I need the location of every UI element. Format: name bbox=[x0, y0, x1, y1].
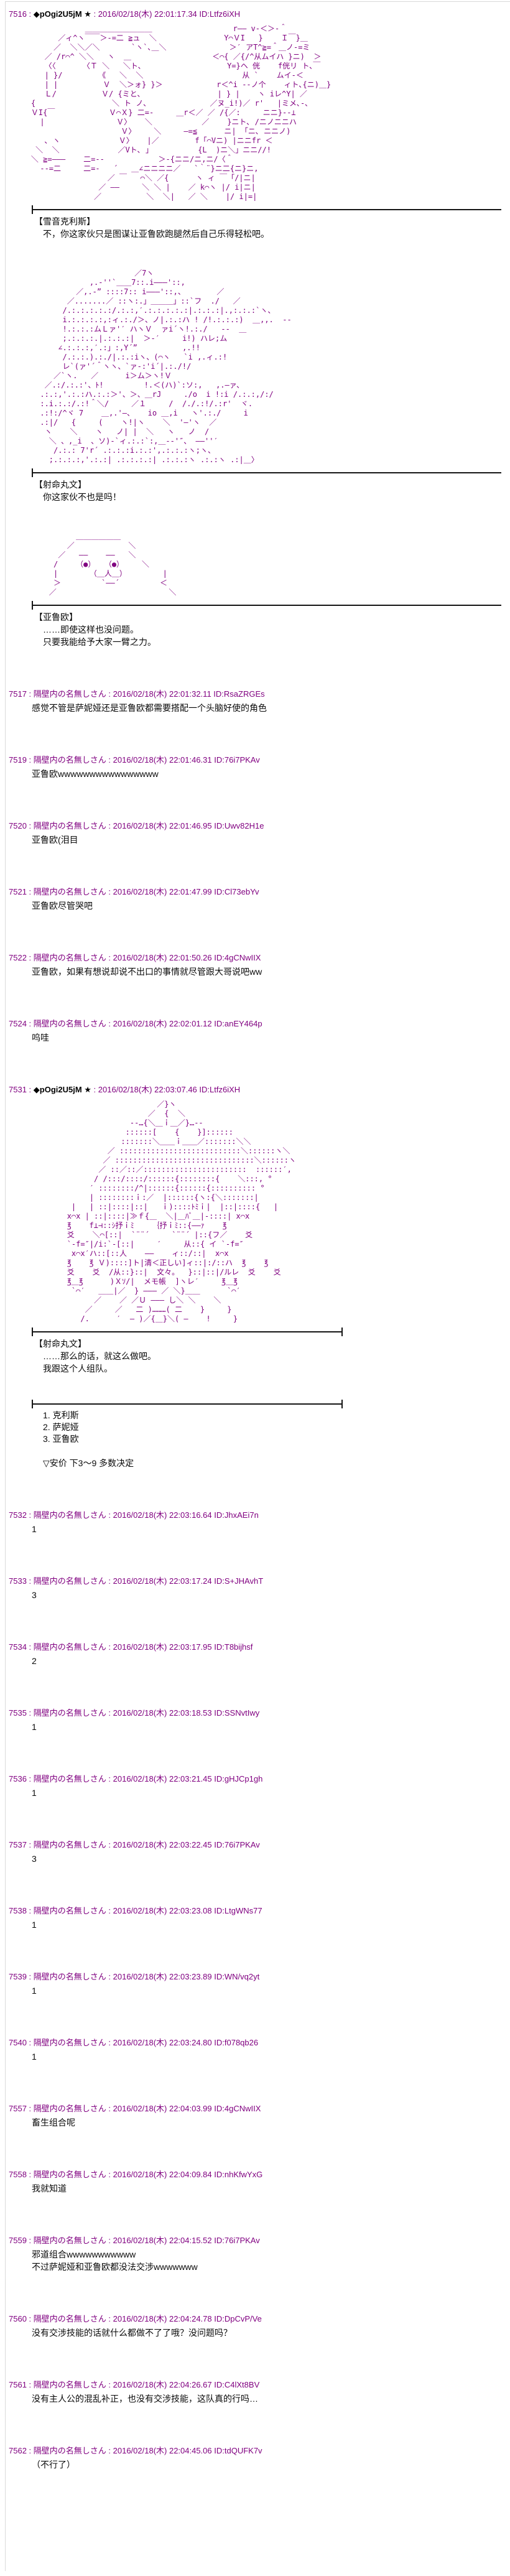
post-date: 2016/02/18(木) 22:03:24.80 bbox=[113, 2038, 212, 2047]
header-separator: : bbox=[27, 953, 34, 962]
post-body-line: 没有交涉技能的话就什么都做不了了哦？没问题吗？ bbox=[6, 2327, 510, 2339]
post: 7536 : 隔壁内の名無しさん : 2016/02/18(木) 22:03:2… bbox=[6, 1773, 510, 1799]
post-id: ID:76i7PKAv bbox=[214, 2236, 259, 2245]
post: 7539 : 隔壁内の名無しさん : 2016/02/18(木) 22:03:2… bbox=[6, 1971, 510, 1997]
header-separator: : bbox=[27, 1019, 34, 1028]
header-separator: : bbox=[27, 1906, 34, 1915]
header-separator: : bbox=[27, 2380, 34, 2389]
post: 7516 : ◆pOgi2U5jM ★ : 2016/02/18(木) 22:0… bbox=[6, 8, 510, 648]
post-number: 7557 bbox=[9, 2104, 27, 2113]
dialog: 【雪音克利斯】不，你这家伙只是图谋让亚鲁欧跑腿然后自己乐得轻松吧。 bbox=[6, 215, 510, 240]
post-body-line: 亚鲁欧wwwwwwwwwwwwwwww bbox=[6, 768, 510, 780]
divider-end-tick bbox=[32, 1400, 33, 1408]
post-body-line: 1 bbox=[6, 1984, 510, 1997]
ascii-art: ＿＿＿＿＿＿ ／ ＼ ／ —— —— ＼ / （●） （●） ＼ | （＿人＿）… bbox=[13, 532, 510, 597]
post-date: 2016/02/18(木) 22:01:50.26 bbox=[113, 953, 212, 962]
speaker-name: 【亚鲁欧】 bbox=[6, 611, 510, 623]
post-header: 7522 : 隔壁内の名無しさん : 2016/02/18(木) 22:01:5… bbox=[6, 952, 510, 964]
post-header: 7559 : 隔壁内の名無しさん : 2016/02/18(木) 22:04:1… bbox=[6, 2234, 510, 2247]
post-header: 7540 : 隔壁内の名無しさん : 2016/02/18(木) 22:03:2… bbox=[6, 2037, 510, 2049]
post-date: 2016/02/18(木) 22:02:01.12 bbox=[113, 1019, 212, 1028]
post-header: 7517 : 隔壁内の名無しさん : 2016/02/18(木) 22:01:3… bbox=[6, 688, 510, 700]
post-id: ID:Uwv82H1e bbox=[214, 821, 264, 830]
post: 7519 : 隔壁内の名無しさん : 2016/02/18(木) 22:01:4… bbox=[6, 754, 510, 780]
post-id: ID:DpCvP/Ve bbox=[214, 2314, 262, 2323]
post: 7561 : 隔壁内の名無しさん : 2016/02/18(木) 22:04:2… bbox=[6, 2379, 510, 2405]
header-separator: : bbox=[106, 1906, 113, 1915]
dialog-divider bbox=[32, 1331, 343, 1332]
post: 7538 : 隔壁内の名無しさん : 2016/02/18(木) 22:03:2… bbox=[6, 1905, 510, 1931]
post-name: 隔壁内の名無しさん bbox=[34, 1019, 106, 1028]
header-separator: : bbox=[27, 1642, 34, 1652]
post-body-line: 1 bbox=[6, 2050, 510, 2063]
post-body: （不行了） bbox=[6, 2458, 510, 2471]
header-separator: : bbox=[106, 821, 113, 830]
dialog: 【射命丸文】……那么的话，就这么做吧。我跟这个人组队。 bbox=[6, 1337, 510, 1375]
post-id: ID:4gCNwIIX bbox=[214, 953, 261, 962]
header-separator: : bbox=[27, 2104, 34, 2113]
header-separator: : bbox=[106, 2446, 113, 2455]
post-body: 感觉不管是萨妮娅还是亚鲁欧都需要搭配一个头脑好使的角色 bbox=[6, 702, 510, 714]
post-date: 2016/02/18(木) 22:04:09.84 bbox=[113, 2170, 212, 2179]
post-id: ID:LtgWNs77 bbox=[214, 1906, 262, 1915]
post-body-line: 没有主人公的混乱补正，也没有交涉技能，这队真的行吗… bbox=[6, 2392, 510, 2405]
post-number: 7533 bbox=[9, 1576, 27, 1586]
header-separator: : bbox=[106, 1642, 113, 1652]
post-number: 7536 bbox=[9, 1774, 27, 1783]
post-header: 7538 : 隔壁内の名無しさん : 2016/02/18(木) 22:03:2… bbox=[6, 1905, 510, 1917]
header-separator: : bbox=[106, 1708, 113, 1718]
header-separator: : bbox=[106, 689, 113, 699]
post-name: ◆pOgi2U5jM ★ bbox=[34, 9, 91, 19]
post-number: 7558 bbox=[9, 2170, 27, 2179]
post-date: 2016/02/18(木) 22:03:22.45 bbox=[113, 1840, 212, 1849]
header-separator: : bbox=[106, 2236, 113, 2245]
post-header: 7539 : 隔壁内の名無しさん : 2016/02/18(木) 22:03:2… bbox=[6, 1971, 510, 1983]
post-id: ID:S+JHAvhT bbox=[214, 1576, 263, 1586]
post-header: 7562 : 隔壁内の名無しさん : 2016/02/18(木) 22:04:4… bbox=[6, 2445, 510, 2457]
post-body-line: 1 bbox=[6, 1787, 510, 1799]
post-header: 7561 : 隔壁内の名無しさん : 2016/02/18(木) 22:04:2… bbox=[6, 2379, 510, 2391]
post-name: 隔壁内の名無しさん bbox=[34, 2104, 106, 2113]
post-date: 2016/02/18(木) 22:04:03.99 bbox=[113, 2104, 212, 2113]
post-name: 隔壁内の名無しさん bbox=[34, 755, 106, 765]
post-date: 2016/02/18(木) 22:03:16.64 bbox=[113, 1510, 212, 1520]
post-body: 2 bbox=[6, 1655, 510, 1667]
post: 7531 : ◆pOgi2U5jM ★ : 2016/02/18(木) 22:0… bbox=[6, 1084, 510, 1469]
post-name: 隔壁内の名無しさん bbox=[34, 953, 106, 962]
divider-end-tick bbox=[32, 468, 33, 477]
post: 7532 : 隔壁内の名無しさん : 2016/02/18(木) 22:03:1… bbox=[6, 1509, 510, 1535]
header-separator: : bbox=[27, 689, 34, 699]
post-body-line: 1 bbox=[6, 1721, 510, 1733]
post: 7522 : 隔壁内の名無しさん : 2016/02/18(木) 22:01:5… bbox=[6, 952, 510, 978]
post-body-line: 邪道组合wwwwwwwwwww bbox=[6, 2248, 510, 2261]
post-id: ID:anEY464p bbox=[214, 1019, 262, 1028]
post-name: 隔壁内の名無しさん bbox=[34, 2038, 106, 2047]
header-separator: : bbox=[106, 2170, 113, 2179]
header-separator: : bbox=[27, 1972, 34, 1981]
header-separator: : bbox=[106, 1972, 113, 1981]
post-body: 1 bbox=[6, 1787, 510, 1799]
header-separator: : bbox=[27, 1774, 34, 1783]
post-name: 隔壁内の名無しさん bbox=[34, 1972, 106, 1981]
post-header: 7560 : 隔壁内の名無しさん : 2016/02/18(木) 22:04:2… bbox=[6, 2313, 510, 2325]
post-number: 7532 bbox=[9, 1510, 27, 1520]
post-body-line: 亚鲁欧，如果有想说却说不出口的事情就尽管跟大哥说吧ww bbox=[6, 965, 510, 978]
header-separator: : bbox=[106, 1774, 113, 1783]
post-body-line: 亚鲁欧(泪目 bbox=[6, 834, 510, 846]
divider-end-tick bbox=[341, 1328, 343, 1336]
post-date: 2016/02/18(木) 22:01:32.11 bbox=[113, 689, 211, 699]
speaker-name: 【射命丸文】 bbox=[6, 1337, 510, 1350]
header-separator: : bbox=[27, 1085, 34, 1094]
vote-option: 2. 萨妮娅 bbox=[6, 1421, 510, 1433]
post-name: 隔壁内の名無しさん bbox=[34, 689, 106, 699]
post-name: 隔壁内の名無しさん bbox=[34, 1774, 106, 1783]
post-header: 7532 : 隔壁内の名無しさん : 2016/02/18(木) 22:03:1… bbox=[6, 1509, 510, 1522]
post-body: 3 bbox=[6, 1589, 510, 1601]
header-separator: : bbox=[27, 1576, 34, 1586]
post-date: 2016/02/18(木) 22:04:24.78 bbox=[113, 2314, 212, 2323]
post-header: 7521 : 隔壁内の名無しさん : 2016/02/18(木) 22:01:4… bbox=[6, 886, 510, 898]
header-separator: : bbox=[106, 1840, 113, 1849]
post-body-line: （不行了） bbox=[6, 2458, 510, 2471]
post-date: 2016/02/18(木) 22:01:46.31 bbox=[113, 755, 212, 765]
post-id: ID:tdQUFK7v bbox=[214, 2446, 262, 2455]
post-body-line: 亚鲁欧尽管哭吧 bbox=[6, 900, 510, 912]
post-number: 7531 bbox=[9, 1085, 27, 1094]
post-body: 呜哇 bbox=[6, 1031, 510, 1044]
post-name: 隔壁内の名無しさん bbox=[34, 1510, 106, 1520]
post-name: 隔壁内の名無しさん bbox=[34, 2236, 106, 2245]
dialog: 【射命丸文】你这家伙不也是吗！ bbox=[6, 478, 510, 503]
post-date: 2016/02/18(木) 22:01:17.34 bbox=[98, 9, 197, 19]
post-header: 7537 : 隔壁内の名無しさん : 2016/02/18(木) 22:03:2… bbox=[6, 1839, 510, 1851]
header-separator: : bbox=[27, 2446, 34, 2455]
header-separator: : bbox=[27, 2170, 34, 2179]
post-date: 2016/02/18(木) 22:04:15.52 bbox=[113, 2236, 212, 2245]
post-name: 隔壁内の名無しさん bbox=[34, 887, 106, 896]
post-header: 7535 : 隔壁内の名無しさん : 2016/02/18(木) 22:03:1… bbox=[6, 1707, 510, 1719]
dialog-line: 你这家伙不也是吗！ bbox=[6, 491, 510, 503]
post-name: 隔壁内の名無しさん bbox=[34, 821, 106, 830]
post-body-line: 不过萨妮娅和亚鲁欧都没法交涉wwwwwww bbox=[6, 2261, 510, 2273]
header-separator: : bbox=[91, 9, 98, 19]
thread: 7516 : ◆pOgi2U5jM ★ : 2016/02/18(木) 22:0… bbox=[6, 8, 510, 2471]
post: 7537 : 隔壁内の名無しさん : 2016/02/18(木) 22:03:2… bbox=[6, 1839, 510, 1865]
post-name: 隔壁内の名無しさん bbox=[34, 2170, 106, 2179]
header-separator: : bbox=[27, 821, 34, 830]
post-id: ID:SSNvtIwy bbox=[214, 1708, 259, 1718]
dialog-line: ……那么的话，就这么做吧。 bbox=[6, 1350, 510, 1362]
post-id: ID:Ltfz6iXH bbox=[199, 9, 240, 19]
post-name: ◆pOgi2U5jM ★ bbox=[34, 1085, 91, 1094]
post-number: 7559 bbox=[9, 2236, 27, 2245]
post-number: 7521 bbox=[9, 887, 27, 896]
post-id: ID:gHJCp1gh bbox=[214, 1774, 262, 1783]
post-id: ID:WN/vq2yt bbox=[214, 1972, 259, 1981]
post-date: 2016/02/18(木) 22:03:18.53 bbox=[113, 1708, 212, 1718]
divider-end-tick bbox=[32, 601, 33, 610]
post-body-line: 1 bbox=[6, 1918, 510, 1931]
post-date: 2016/02/18(木) 22:03:23.89 bbox=[113, 1972, 212, 1981]
post-date: 2016/02/18(木) 22:03:21.45 bbox=[113, 1774, 212, 1783]
post: 7562 : 隔壁内の名無しさん : 2016/02/18(木) 22:04:4… bbox=[6, 2445, 510, 2471]
dialog-line: 只要我能给予大家一臂之力。 bbox=[6, 636, 510, 648]
post-id: ID:Ltfz6iXH bbox=[199, 1085, 240, 1094]
post-header: 7516 : ◆pOgi2U5jM ★ : 2016/02/18(木) 22:0… bbox=[6, 8, 510, 21]
ascii-art: ＿＿＿＿＿＿＿＿＿ r―― v-＜＞-＾ ／ィ^ヽ￣￣＞-=二 ≧ュ ＼ Y⌒Ｖ… bbox=[13, 24, 510, 202]
header-separator: : bbox=[106, 1576, 113, 1586]
post-number: 7560 bbox=[9, 2314, 27, 2323]
post-header: 7557 : 隔壁内の名無しさん : 2016/02/18(木) 22:04:0… bbox=[6, 2103, 510, 2115]
dialog-divider bbox=[32, 1403, 343, 1405]
post-name: 隔壁内の名無しさん bbox=[34, 1642, 106, 1652]
post-name: 隔壁内の名無しさん bbox=[34, 1840, 106, 1849]
post-number: 7538 bbox=[9, 1906, 27, 1915]
post-id: ID:4gCNwIIX bbox=[214, 2104, 261, 2113]
post-number: 7534 bbox=[9, 1642, 27, 1652]
post-id: ID:76i7PKAv bbox=[214, 755, 259, 765]
post-number: 7517 bbox=[9, 689, 27, 699]
post-body-line: 3 bbox=[6, 1589, 510, 1601]
post-body: 亚鲁欧(泪目 bbox=[6, 834, 510, 846]
vote-option: 1. 克利斯 bbox=[6, 1410, 510, 1421]
post-id: ID:RsaZRGEs bbox=[213, 689, 264, 699]
post-body: 亚鲁欧尽管哭吧 bbox=[6, 900, 510, 912]
post: 7521 : 隔壁内の名無しさん : 2016/02/18(木) 22:01:4… bbox=[6, 886, 510, 912]
post-name: 隔壁内の名無しさん bbox=[34, 1708, 106, 1718]
post: 7559 : 隔壁内の名無しさん : 2016/02/18(木) 22:04:1… bbox=[6, 2234, 510, 2273]
post-body: ＿＿＿＿＿＿＿＿＿ r―― v-＜＞-＾ ／ィ^ヽ￣￣＞-=二 ≧ュ ＼ Y⌒Ｖ… bbox=[6, 24, 510, 648]
vote-option: 3. 亚鲁欧 bbox=[6, 1433, 510, 1445]
post: 7558 : 隔壁内の名無しさん : 2016/02/18(木) 22:04:0… bbox=[6, 2169, 510, 2195]
dialog-divider bbox=[32, 605, 501, 606]
speaker-name: 【雪音克利斯】 bbox=[6, 215, 510, 228]
header-separator: : bbox=[106, 1019, 113, 1028]
post: 7533 : 隔壁内の名無しさん : 2016/02/18(木) 22:03:1… bbox=[6, 1575, 510, 1601]
header-separator: : bbox=[106, 953, 113, 962]
post-number: 7520 bbox=[9, 821, 27, 830]
post-body: 1 bbox=[6, 1721, 510, 1733]
post-body-line: 3 bbox=[6, 1853, 510, 1865]
post-id: ID:Cl73ebYv bbox=[214, 887, 259, 896]
post-number: 7524 bbox=[9, 1019, 27, 1028]
post-number: 7535 bbox=[9, 1708, 27, 1718]
header-separator: : bbox=[106, 887, 113, 896]
post-id: ID:76i7PKAv bbox=[214, 1840, 259, 1849]
post-body: 亚鲁欧，如果有想说却说不出口的事情就尽管跟大哥说吧ww bbox=[6, 965, 510, 978]
post-header: 7536 : 隔壁内の名無しさん : 2016/02/18(木) 22:03:2… bbox=[6, 1773, 510, 1785]
post-id: ID:T8bijhsf bbox=[214, 1642, 253, 1652]
post-header: 7558 : 隔壁内の名無しさん : 2016/02/18(木) 22:04:0… bbox=[6, 2169, 510, 2181]
post-body: 1 bbox=[6, 1523, 510, 1535]
post: 7557 : 隔壁内の名無しさん : 2016/02/18(木) 22:04:0… bbox=[6, 2103, 510, 2129]
post-name: 隔壁内の名無しさん bbox=[34, 2446, 106, 2455]
post-body-line: 呜哇 bbox=[6, 1031, 510, 1044]
dialog-line: 我跟这个人组队。 bbox=[6, 1362, 510, 1375]
post-body: ／}ヽ ／ { ＼ --…{＼＿ｉ＿／}…-- ::::::[ { }]::::… bbox=[6, 1100, 510, 1469]
post-name: 隔壁内の名無しさん bbox=[34, 1906, 106, 1915]
post-id: ID:JhxAEi7n bbox=[214, 1510, 259, 1520]
page: 7516 : ◆pOgi2U5jM ★ : 2016/02/18(木) 22:0… bbox=[5, 1, 510, 2571]
post-number: 7561 bbox=[9, 2380, 27, 2389]
header-separator: : bbox=[27, 887, 34, 896]
post-body: 没有交涉技能的话就什么都做不了了哦？没问题吗？ bbox=[6, 2327, 510, 2339]
header-separator: : bbox=[27, 2236, 34, 2245]
post-body-line: 感觉不管是萨妮娅还是亚鲁欧都需要搭配一个头脑好使的角色 bbox=[6, 702, 510, 714]
post: 7540 : 隔壁内の名無しさん : 2016/02/18(木) 22:03:2… bbox=[6, 2037, 510, 2063]
post-id: ID:nhKfwYxG bbox=[214, 2170, 262, 2179]
post-date: 2016/02/18(木) 22:04:26.67 bbox=[113, 2380, 212, 2389]
dialog-divider bbox=[32, 209, 501, 210]
header-separator: : bbox=[27, 9, 34, 19]
anchor-instruction: ▽安价 下3～9 多数决定 bbox=[6, 1458, 510, 1469]
divider-end-tick bbox=[32, 205, 33, 214]
ascii-art: ／7ヽ ,.‐''`＿＿7::.i———'::, ／,.‐” ::::7:: i… bbox=[13, 269, 510, 465]
post-number: 7522 bbox=[9, 953, 27, 962]
divider-end-tick bbox=[32, 1328, 33, 1336]
post-number: 7540 bbox=[9, 2038, 27, 2047]
ascii-art: ／}ヽ ／ { ＼ --…{＼＿ｉ＿／}…-- ::::::[ { }]::::… bbox=[13, 1100, 510, 1324]
post-body-line: 2 bbox=[6, 1655, 510, 1667]
header-separator: : bbox=[106, 755, 113, 765]
post-name: 隔壁内の名無しさん bbox=[34, 2380, 106, 2389]
post-date: 2016/02/18(木) 22:04:45.06 bbox=[113, 2446, 212, 2455]
post-date: 2016/02/18(木) 22:01:46.95 bbox=[113, 821, 212, 830]
header-separator: : bbox=[27, 2314, 34, 2323]
header-separator: : bbox=[106, 2104, 113, 2113]
post-body: 1 bbox=[6, 2050, 510, 2063]
post-id: ID:C4lXt8BV bbox=[214, 2380, 259, 2389]
header-separator: : bbox=[27, 2038, 34, 2047]
header-separator: : bbox=[27, 1510, 34, 1520]
post-body-line: 畜生组合呢 bbox=[6, 2116, 510, 2129]
post-name: 隔壁内の名無しさん bbox=[34, 1576, 106, 1586]
divider-end-tick bbox=[341, 1400, 343, 1408]
post-id: ID:f078qb26 bbox=[214, 2038, 258, 2047]
dialog-line: 不，你这家伙只是图谋让亚鲁欧跑腿然后自己乐得轻松吧。 bbox=[6, 228, 510, 240]
header-separator: : bbox=[106, 1510, 113, 1520]
post: 7524 : 隔壁内の名無しさん : 2016/02/18(木) 22:02:0… bbox=[6, 1018, 510, 1044]
dialog: 【亚鲁欧】……即使这样也没问题。只要我能给予大家一臂之力。 bbox=[6, 611, 510, 648]
post-body: 没有主人公的混乱补正，也没有交涉技能，这队真的行吗… bbox=[6, 2392, 510, 2405]
post-body: 1 bbox=[6, 1918, 510, 1931]
post-body: 我就知道 bbox=[6, 2182, 510, 2195]
post-header: 7519 : 隔壁内の名無しさん : 2016/02/18(木) 22:01:4… bbox=[6, 754, 510, 766]
post-date: 2016/02/18(木) 22:01:47.99 bbox=[113, 887, 212, 896]
header-separator: : bbox=[27, 1708, 34, 1718]
header-separator: : bbox=[91, 1085, 98, 1094]
post-date: 2016/02/18(木) 22:03:17.24 bbox=[113, 1576, 212, 1586]
post: 7534 : 隔壁内の名無しさん : 2016/02/18(木) 22:03:1… bbox=[6, 1641, 510, 1667]
post: 7517 : 隔壁内の名無しさん : 2016/02/18(木) 22:01:3… bbox=[6, 688, 510, 714]
post-body: 1 bbox=[6, 1984, 510, 1997]
post-body: 3 bbox=[6, 1853, 510, 1865]
post: 7535 : 隔壁内の名無しさん : 2016/02/18(木) 22:03:1… bbox=[6, 1707, 510, 1733]
post-number: 7516 bbox=[9, 9, 27, 19]
post-body: 邪道组合wwwwwwwwwww不过萨妮娅和亚鲁欧都没法交涉wwwwwww bbox=[6, 2248, 510, 2273]
post-body: 亚鲁欧wwwwwwwwwwwwwwww bbox=[6, 768, 510, 780]
post-header: 7524 : 隔壁内の名無しさん : 2016/02/18(木) 22:02:0… bbox=[6, 1018, 510, 1030]
post-body-line: 1 bbox=[6, 1523, 510, 1535]
post-number: 7537 bbox=[9, 1840, 27, 1849]
header-separator: : bbox=[106, 2380, 113, 2389]
post-number: 7539 bbox=[9, 1972, 27, 1981]
post-name: 隔壁内の名無しさん bbox=[34, 2314, 106, 2323]
post: 7520 : 隔壁内の名無しさん : 2016/02/18(木) 22:01:4… bbox=[6, 820, 510, 846]
post-date: 2016/02/18(木) 22:03:07.46 bbox=[98, 1085, 197, 1094]
post-number: 7562 bbox=[9, 2446, 27, 2455]
post-header: 7534 : 隔壁内の名無しさん : 2016/02/18(木) 22:03:1… bbox=[6, 1641, 510, 1653]
speaker-name: 【射命丸文】 bbox=[6, 478, 510, 491]
post-header: 7520 : 隔壁内の名無しさん : 2016/02/18(木) 22:01:4… bbox=[6, 820, 510, 832]
post: 7560 : 隔壁内の名無しさん : 2016/02/18(木) 22:04:2… bbox=[6, 2313, 510, 2339]
post-header: 7533 : 隔壁内の名無しさん : 2016/02/18(木) 22:03:1… bbox=[6, 1575, 510, 1588]
post-header: 7531 : ◆pOgi2U5jM ★ : 2016/02/18(木) 22:0… bbox=[6, 1084, 510, 1096]
post-number: 7519 bbox=[9, 755, 27, 765]
dialog-divider bbox=[32, 472, 501, 473]
post-date: 2016/02/18(木) 22:03:17.95 bbox=[113, 1642, 212, 1652]
header-separator: : bbox=[106, 2038, 113, 2047]
header-separator: : bbox=[27, 755, 34, 765]
dialog-line: ……即使这样也没问题。 bbox=[6, 623, 510, 636]
header-separator: : bbox=[106, 2314, 113, 2323]
post-body: 畜生组合呢 bbox=[6, 2116, 510, 2129]
post-date: 2016/02/18(木) 22:03:23.08 bbox=[113, 1906, 212, 1915]
post-body-line: 我就知道 bbox=[6, 2182, 510, 2195]
header-separator: : bbox=[27, 1840, 34, 1849]
